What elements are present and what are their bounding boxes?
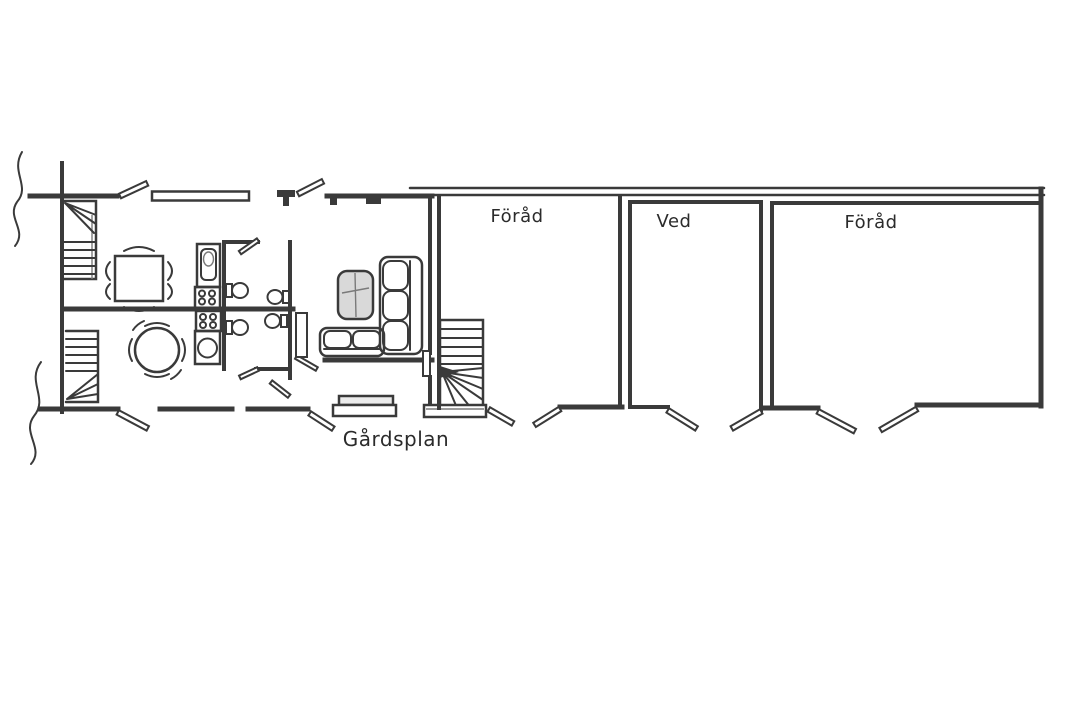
room-label-storage-a: Föråd bbox=[490, 206, 543, 227]
door-leaf bbox=[666, 408, 697, 430]
chimney bbox=[277, 190, 295, 206]
chair-arc bbox=[106, 284, 110, 299]
room-label-wood-shed: Ved bbox=[657, 211, 692, 232]
door-leaf bbox=[297, 179, 324, 196]
stove-hob bbox=[195, 287, 220, 308]
wall-tab bbox=[330, 198, 337, 205]
door-leaf bbox=[533, 407, 561, 427]
door-leaf bbox=[270, 380, 291, 397]
toilet bbox=[268, 290, 290, 304]
door-leaf bbox=[879, 407, 918, 432]
toilet bbox=[265, 314, 287, 328]
courtyard-label: Gårdsplan bbox=[343, 427, 449, 451]
door-leaf bbox=[117, 410, 149, 430]
stair-landing bbox=[424, 405, 486, 417]
sofa-three-seat bbox=[380, 257, 422, 354]
chair-arc bbox=[133, 321, 144, 330]
chair-arc bbox=[168, 262, 172, 280]
room-wood-walls bbox=[630, 202, 761, 410]
dining-table-square bbox=[106, 247, 172, 311]
window bbox=[152, 192, 249, 201]
toilet bbox=[226, 283, 248, 298]
door-leaf bbox=[239, 367, 259, 379]
chair-arc bbox=[145, 323, 169, 326]
room-label-storage-b: Föråd bbox=[844, 212, 897, 233]
door-leaf-open bbox=[423, 351, 430, 376]
interior-walls bbox=[64, 309, 432, 360]
chair-arc bbox=[106, 262, 110, 280]
break-line-bottom bbox=[30, 362, 41, 464]
chair-arc bbox=[182, 339, 185, 361]
door-leaf bbox=[488, 407, 515, 425]
sofa-group bbox=[320, 257, 422, 356]
residential-door-leaves bbox=[117, 179, 515, 431]
winder-staircase bbox=[423, 320, 486, 417]
kitchenette-lower bbox=[195, 311, 221, 364]
entrance-steps bbox=[333, 396, 396, 416]
break-line-top bbox=[14, 152, 22, 246]
chair-arc bbox=[171, 370, 181, 379]
door-leaf bbox=[119, 181, 148, 198]
wall-tab bbox=[366, 198, 381, 204]
door-leaf bbox=[731, 409, 763, 430]
dining-table-round bbox=[129, 321, 185, 379]
staircase-upper bbox=[64, 201, 96, 279]
toilet bbox=[226, 320, 248, 335]
room-storage-b-walls bbox=[772, 203, 1038, 408]
chair-arc bbox=[129, 339, 132, 361]
chair-arc bbox=[124, 247, 154, 251]
floor-plan-page: Föråd Ved Föråd Gårdsplan bbox=[0, 0, 1080, 720]
chair-arc bbox=[145, 374, 169, 377]
door-leaf-open bbox=[296, 313, 307, 357]
staircase-lower bbox=[66, 331, 98, 402]
stove-hob bbox=[196, 311, 221, 331]
chair-arc bbox=[168, 284, 172, 299]
kitchenette-upper bbox=[195, 244, 220, 308]
door-leaf bbox=[817, 409, 856, 433]
door-leaf bbox=[308, 411, 334, 430]
wc-rooms bbox=[224, 238, 318, 397]
floor-plan-drawing: Föråd Ved Föråd Gårdsplan bbox=[0, 0, 1080, 720]
